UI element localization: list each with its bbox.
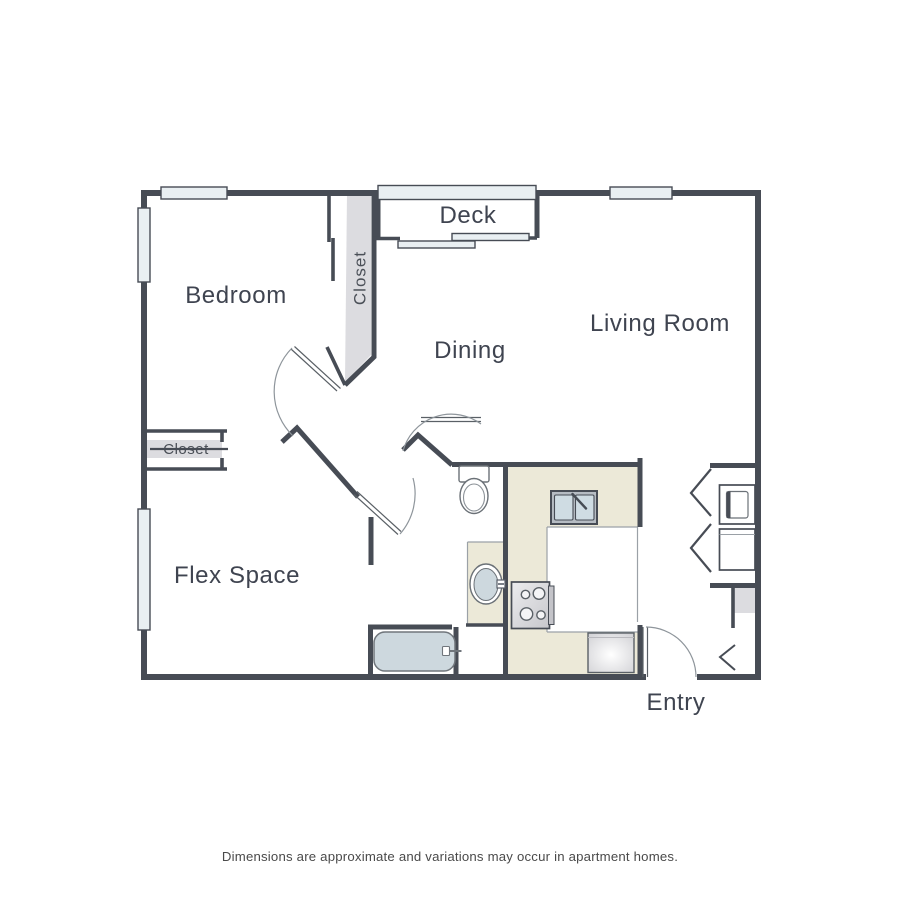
floorplan-drawing: Bedroom Deck Dining Living Room Flex Spa…: [0, 0, 900, 900]
bedroom-side-window: [138, 208, 150, 282]
room-label-deck: Deck: [439, 202, 496, 229]
bedroom-door-leaf: [291, 347, 341, 392]
room-label-living-room: Living Room: [590, 310, 730, 337]
room-label-bedroom: Bedroom: [185, 282, 287, 309]
deck-window: [378, 186, 536, 200]
flex-space-window: [138, 509, 150, 630]
room-label-dining: Dining: [434, 337, 506, 364]
floorplan-canvas: Bedroom Deck Dining Living Room Flex Spa…: [0, 0, 900, 900]
laundry-bifold-door-bottom: [691, 524, 711, 572]
interior-walls: [141, 190, 755, 677]
floor-fills: [147, 193, 758, 675]
laundry-bifold-door-top: [691, 469, 711, 516]
living-room-window: [610, 187, 672, 199]
sliding-door-panel-left: [398, 241, 475, 248]
kitchen-sink: [551, 491, 597, 524]
disclaimer-text: Dimensions are approximate and variation…: [222, 849, 678, 864]
hall-door-leaf: [354, 492, 401, 535]
hall-door-swing: [400, 478, 415, 534]
room-label-bedroom-closet: Closet: [351, 251, 370, 305]
entry-wall-chase: [735, 588, 758, 613]
toilet: [459, 466, 489, 514]
refrigerator: [588, 633, 634, 673]
entry-door-swing: [646, 627, 696, 677]
stove: [512, 582, 555, 629]
bath-door-swing: [403, 414, 481, 451]
room-label-flex-space: Flex Space: [174, 562, 300, 589]
entry-door-leaf: [643, 627, 648, 677]
exterior-walls: [141, 190, 761, 680]
room-label-entry: Entry: [646, 689, 705, 716]
entry-closet-door: [720, 645, 735, 670]
bedroom-window: [161, 187, 227, 199]
dryer: [720, 485, 756, 524]
bedroom-door-swing: [274, 348, 293, 436]
washer: [720, 529, 756, 570]
bathtub: [374, 632, 462, 671]
sliding-door-panel-right: [452, 234, 529, 241]
